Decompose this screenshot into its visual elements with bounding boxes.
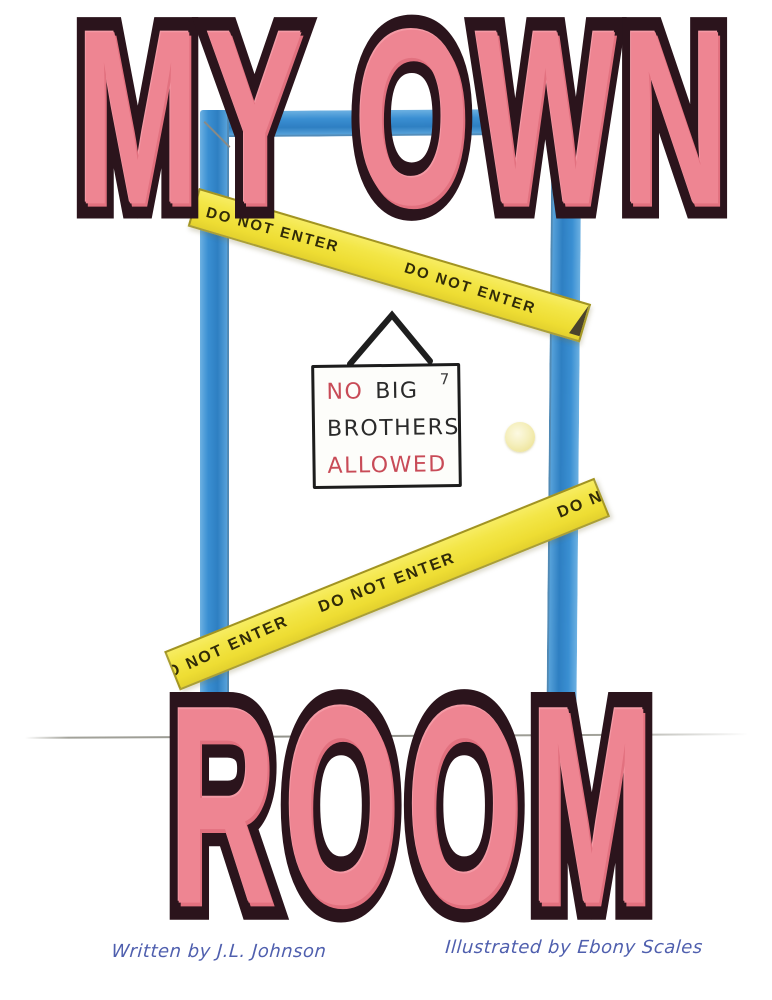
title-room: ROOM ROOM	[29, 667, 772, 948]
tape-text: DO N	[555, 488, 606, 523]
author-credit: Written by J.L. Johnson	[87, 941, 350, 962]
sign-hanger-icon	[342, 308, 434, 368]
sign-line-1: NOBIG	[326, 372, 458, 411]
tape-text: DO NOT ENTER	[316, 549, 458, 617]
pen-mark: 7	[440, 370, 450, 388]
illustrator-credit: Illustrated by Ebony Scales	[423, 937, 724, 958]
book-cover: DO NOT ENTER DO NOT ENTER O NOT ENTER DO…	[0, 0, 772, 1000]
sign-word-big: BIG	[375, 379, 418, 405]
door-frame-top	[200, 109, 578, 138]
sign-word-no: NO	[326, 379, 363, 405]
caution-tape-lower: O NOT ENTER DO NOT ENTER DO N	[164, 478, 610, 691]
sign-line-3: ALLOWED	[327, 446, 459, 485]
tape-fold-end	[569, 302, 589, 336]
no-big-brothers-sign: NOBIG BROTHERS ALLOWED 7	[311, 363, 462, 489]
sign-line-2: BROTHERS	[327, 409, 459, 448]
floor-line	[25, 733, 748, 739]
door-frame-right	[546, 126, 581, 718]
title-outline-layer: ROOM	[29, 667, 772, 948]
doorknob	[505, 422, 535, 452]
title-fill-layer: ROOM	[169, 650, 661, 964]
